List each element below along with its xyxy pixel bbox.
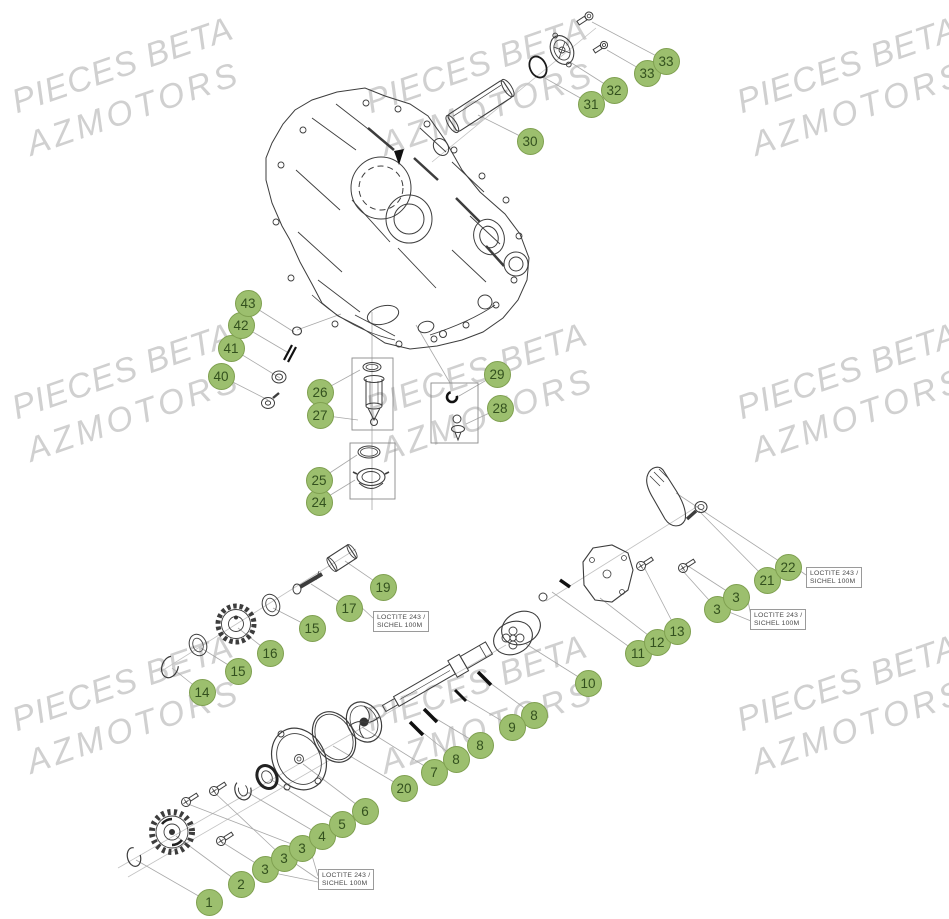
part-30-tube bbox=[444, 77, 517, 134]
callout-27[interactable]: 27 bbox=[307, 402, 334, 429]
callout-40[interactable]: 40 bbox=[208, 363, 235, 390]
box-valve-26-27 bbox=[352, 358, 393, 430]
note-line1: LOCTITE 243 / bbox=[322, 872, 370, 880]
part-9-pin bbox=[455, 690, 466, 701]
callout-22[interactable]: 22 bbox=[775, 554, 802, 581]
note-line2: SICHEL 100M bbox=[754, 620, 802, 628]
callout-32[interactable]: 32 bbox=[601, 77, 628, 104]
callout-1[interactable]: 1 bbox=[196, 889, 223, 916]
loctite-note: LOCTITE 243 /SICHEL 100M bbox=[318, 869, 374, 890]
part-13-screw bbox=[635, 555, 655, 572]
part-28-valve-bolt bbox=[452, 415, 465, 440]
callout-15[interactable]: 15 bbox=[299, 615, 326, 642]
callout-16[interactable]: 16 bbox=[257, 640, 284, 667]
callout-15[interactable]: 15 bbox=[225, 658, 252, 685]
part-43-ring bbox=[293, 327, 302, 335]
callout-33[interactable]: 33 bbox=[653, 48, 680, 75]
part-2-impeller-gear bbox=[152, 812, 192, 852]
loctite-note: LOCTITE 243 /SICHEL 100M bbox=[373, 611, 429, 632]
part-3-screw-right bbox=[677, 557, 697, 574]
callout-17[interactable]: 17 bbox=[336, 595, 363, 622]
callout-29[interactable]: 29 bbox=[484, 361, 511, 388]
note-line1: LOCTITE 243 / bbox=[810, 570, 858, 578]
note-line2: SICHEL 100M bbox=[810, 578, 858, 586]
part-14-circlip bbox=[159, 654, 182, 680]
callout-19[interactable]: 19 bbox=[370, 574, 397, 601]
callout-8[interactable]: 8 bbox=[467, 732, 494, 759]
callout-43[interactable]: 43 bbox=[235, 290, 262, 317]
part-pin-small bbox=[560, 580, 570, 587]
part-3-screws bbox=[180, 780, 235, 847]
part-11-ball bbox=[539, 593, 547, 601]
part-10-rotor bbox=[488, 605, 546, 661]
axis-lines bbox=[118, 28, 698, 877]
leader-lines bbox=[136, 22, 806, 902]
callout-3[interactable]: 3 bbox=[723, 584, 750, 611]
callout-10[interactable]: 10 bbox=[575, 670, 602, 697]
part-5-seal bbox=[253, 762, 281, 792]
part-1-ring bbox=[125, 846, 142, 868]
loctite-note: LOCTITE 243 /SICHEL 100M bbox=[806, 567, 862, 588]
callout-9[interactable]: 9 bbox=[499, 714, 526, 741]
box-circlip-28-29 bbox=[431, 383, 478, 443]
callout-25[interactable]: 25 bbox=[306, 467, 333, 494]
parts-40-43 bbox=[262, 327, 302, 409]
pump-cluster bbox=[233, 605, 546, 802]
part-shaft bbox=[379, 640, 493, 717]
lever-cluster bbox=[539, 467, 707, 602]
callout-2[interactable]: 2 bbox=[228, 871, 255, 898]
callout-28[interactable]: 28 bbox=[487, 395, 514, 422]
part-4-retainer bbox=[233, 778, 254, 801]
parts-diagram-page: PIECES BETAAZMOTORSPIECES BETAAZMOTORSPI… bbox=[0, 0, 949, 919]
box-cap-24-25 bbox=[350, 443, 395, 499]
callout-13[interactable]: 13 bbox=[664, 618, 691, 645]
crankcase-drawing bbox=[266, 88, 529, 349]
part-15-washer-right bbox=[259, 592, 282, 618]
note-line2: SICHEL 100M bbox=[377, 622, 425, 630]
callout-6[interactable]: 6 bbox=[352, 798, 379, 825]
part-17-stud bbox=[293, 571, 322, 594]
part-33-screws bbox=[576, 10, 609, 54]
part-31-oring bbox=[526, 54, 550, 81]
part-40-bolt bbox=[262, 393, 280, 409]
note-line1: LOCTITE 243 / bbox=[754, 612, 802, 620]
part-8-pins bbox=[410, 672, 491, 735]
part-20-gasket bbox=[304, 704, 364, 770]
part-7-impeller bbox=[340, 696, 389, 749]
note-line2: SICHEL 100M bbox=[322, 880, 370, 888]
callout-30[interactable]: 30 bbox=[517, 128, 544, 155]
note-line1: LOCTITE 243 / bbox=[377, 614, 425, 622]
part-15-washer-left bbox=[186, 632, 209, 658]
exploded-diagram-art bbox=[0, 0, 949, 919]
callout-31[interactable]: 31 bbox=[578, 91, 605, 118]
callout-8[interactable]: 8 bbox=[443, 746, 470, 773]
part-29-circlip bbox=[447, 392, 457, 402]
callout-20[interactable]: 20 bbox=[391, 775, 418, 802]
arrow-marker bbox=[394, 149, 404, 165]
part-42-pin bbox=[284, 345, 296, 362]
callout-14[interactable]: 14 bbox=[189, 679, 216, 706]
callout-41[interactable]: 41 bbox=[218, 335, 245, 362]
loctite-note: LOCTITE 243 /SICHEL 100M bbox=[750, 609, 806, 630]
